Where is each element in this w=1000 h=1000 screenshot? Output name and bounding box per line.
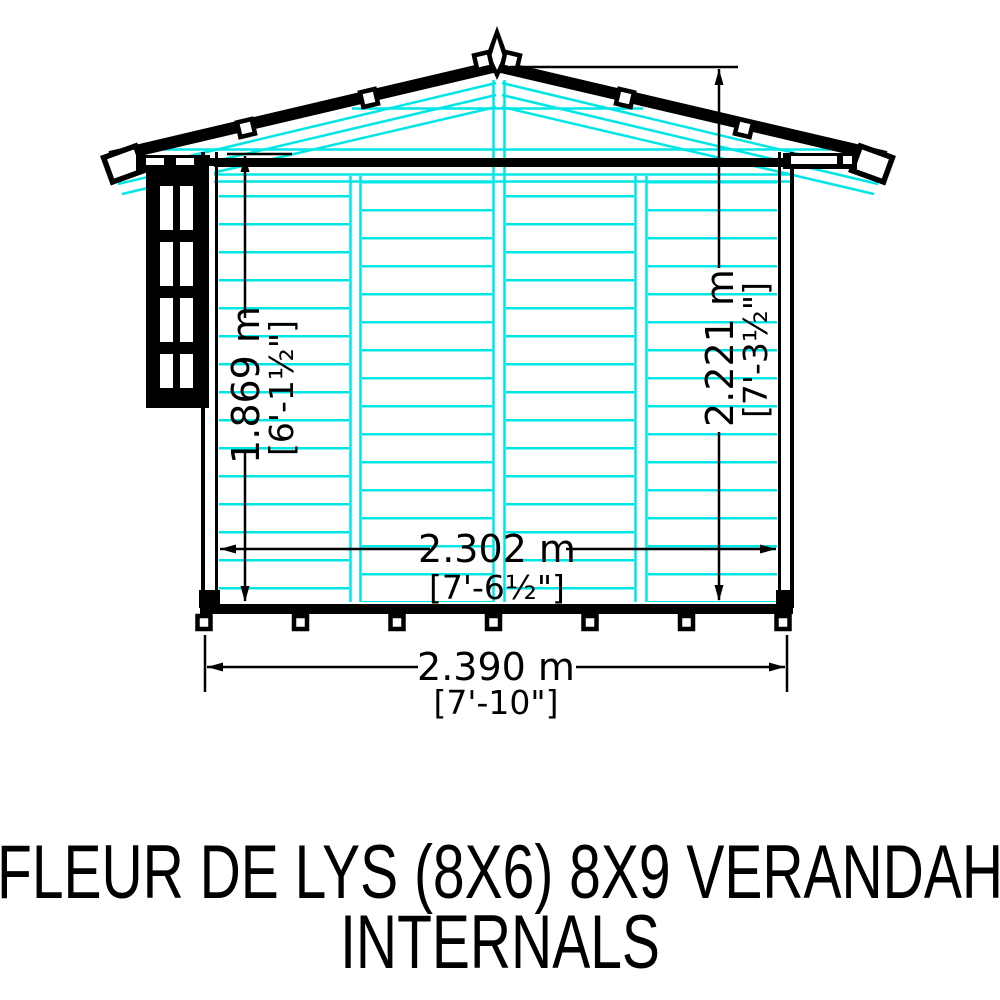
left-soffit-slot (176, 158, 194, 165)
floor-bearer (391, 616, 404, 629)
door-pane (160, 354, 173, 388)
roof-batten (474, 52, 492, 70)
product-title: FLEUR DE LYS (8X6) 8X9 VERANDAH INTERNAL… (0, 830, 1000, 985)
floor-bearer (198, 616, 211, 629)
right-soffit-slot (843, 156, 852, 164)
left-soffit-slot (146, 158, 164, 165)
right-wall (790, 152, 794, 608)
door-leaf (146, 166, 209, 408)
dim-eaves-height-imperial: [6'-1½"] (262, 320, 301, 456)
door-pane (180, 242, 193, 286)
title-line-2: INTERNALS (340, 900, 660, 985)
product-diagram-page: 1.869 m [6'-1½"] 2.221 m [7'-3½"] 2.302 … (0, 0, 1000, 1000)
top-plate (205, 158, 793, 167)
left-wall-inner-face (215, 152, 218, 608)
roof-batten (735, 119, 753, 137)
door-pane (160, 186, 173, 230)
door-pane (180, 298, 193, 342)
door-side-profile (146, 166, 214, 408)
floor-bearer (487, 616, 500, 629)
dim-arrow-left (207, 663, 223, 672)
dim-arrow-up (715, 69, 724, 85)
roof-batten (616, 89, 634, 107)
floor-bearer (680, 616, 693, 629)
floor-bearer (584, 616, 597, 629)
door-pane (180, 354, 193, 388)
right-soffit-slot (791, 156, 837, 164)
dim-internal-width-imperial: [7'-6½"] (429, 568, 565, 607)
door-pane (160, 298, 173, 342)
dim-external-width-imperial: [7'-10"] (434, 683, 559, 722)
dim-internal-width-metric: 2.302 m (418, 527, 576, 571)
verandah-internals-diagram: 1.869 m [6'-1½"] 2.221 m [7'-3½"] 2.302 … (0, 0, 1000, 1000)
door-pane (180, 186, 193, 230)
door-pane (160, 242, 173, 286)
right-wall-inner-face (778, 152, 781, 608)
roof-batten (237, 119, 255, 137)
dim-arrow-right (769, 663, 785, 672)
floor-bearer (294, 616, 307, 629)
roof-batten (360, 89, 378, 107)
floor-bearer (777, 616, 790, 629)
roof-outline (110, 66, 886, 157)
dim-ridge-height-imperial: [7'-3½"] (736, 282, 775, 418)
